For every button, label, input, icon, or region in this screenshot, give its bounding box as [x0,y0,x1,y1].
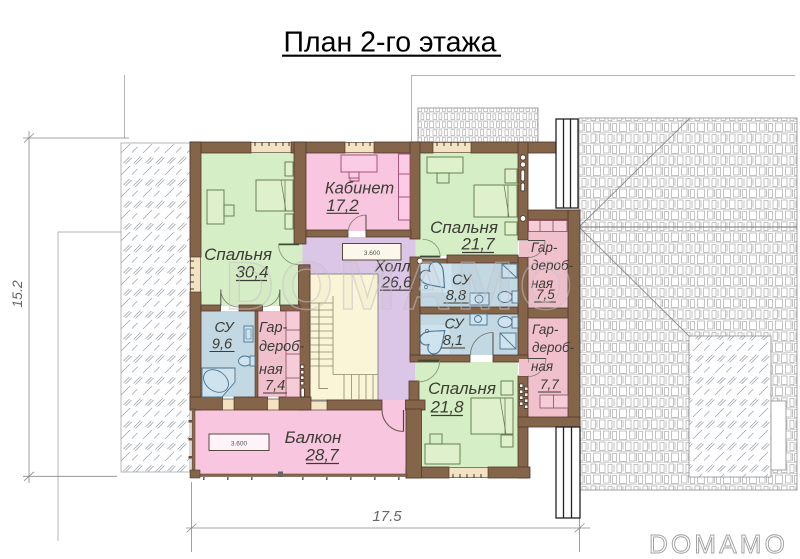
svg-text:17.5: 17.5 [372,508,402,525]
svg-text:План 2-го этажа: План 2-го этажа [284,27,497,59]
svg-text:дероб-: дероб- [532,340,575,355]
svg-text:7,7: 7,7 [540,377,559,392]
svg-text:DOMAMO: DOMAMO [225,248,578,324]
svg-text:9,6: 9,6 [212,337,233,353]
svg-text:Гар-: Гар- [532,322,559,337]
svg-text:3.600: 3.600 [231,441,248,448]
svg-text:ная: ная [259,362,283,378]
svg-text:DOMAMO: DOMAMO [649,529,788,559]
svg-text:15.2: 15.2 [9,280,25,307]
svg-text:дероб-: дероб- [259,339,304,355]
svg-text:Балкон: Балкон [285,428,342,447]
svg-text:7,4: 7,4 [265,378,285,394]
svg-text:8,1: 8,1 [443,333,463,349]
svg-text:Кабинет: Кабинет [325,180,394,198]
svg-text:28,7: 28,7 [304,446,339,465]
svg-text:21,8: 21,8 [429,398,464,417]
svg-text:ная: ная [531,359,553,374]
svg-text:Спальня: Спальня [428,379,496,398]
svg-text:17,2: 17,2 [326,197,358,215]
